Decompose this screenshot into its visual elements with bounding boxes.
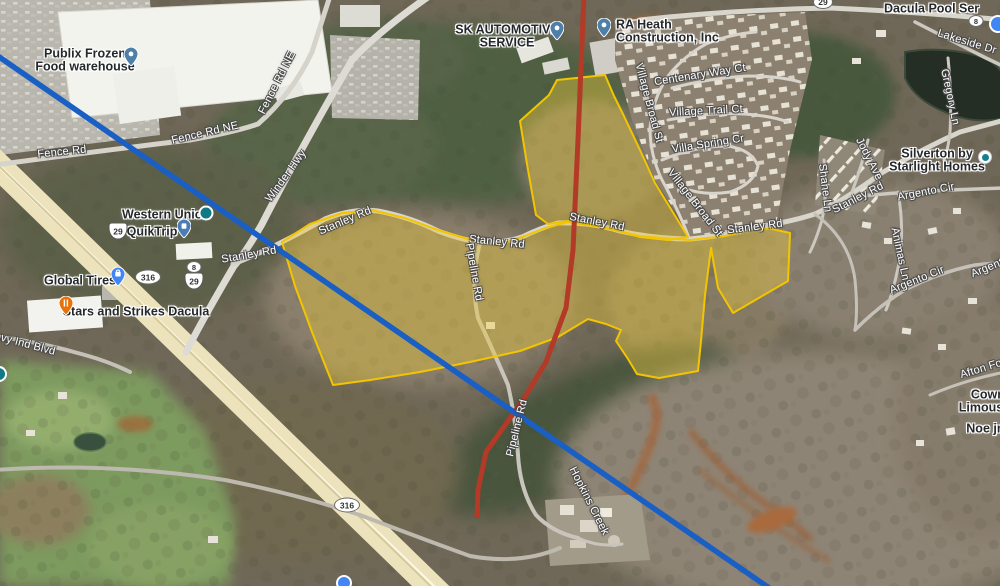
road-label-shane-ln: Shane Ln (816, 163, 834, 213)
ga-316-shield: 316 (135, 270, 161, 285)
ga-8-shield-2: 8 (969, 15, 984, 27)
road-label-fence-rd: Fence Rd (37, 143, 87, 160)
road-label-pipeline-rd-1: Pipeline Rd (463, 242, 485, 302)
ga-8-shield: 8 (187, 261, 202, 273)
road-label-stanley-rd-1: Stanley Rd (220, 244, 277, 266)
silverton-pin-icon[interactable] (978, 150, 992, 164)
western-union-dot-pin-icon[interactable] (199, 206, 214, 221)
poi-label-silverton[interactable]: Silverton byStarlight Homes (889, 147, 985, 173)
sk-automotive-pin-icon[interactable] (550, 21, 564, 45)
road-label-fence-rd-ne-2: Fence Rd NE (256, 50, 298, 116)
ra-heath-pin-icon[interactable] (597, 18, 611, 42)
road-label-gregory-ln: Gregory Ln (938, 68, 962, 126)
global-tires-shopping-pin-icon[interactable] (111, 267, 125, 291)
poi-label-publix[interactable]: Publix FrozenFood warehouse (35, 47, 134, 73)
satellite-map-canvas[interactable]: Fence Rd Fence Rd NE Fence Rd NE Winder … (0, 0, 1000, 586)
road-label-pipeline-rd-2: Pipeline Rd (504, 398, 530, 458)
stars-strikes-restaurant-pin-icon[interactable] (59, 296, 73, 320)
publix-pin-icon[interactable] (124, 47, 138, 71)
road-label-ind-blvd: ovy Ind Blvd (0, 330, 57, 358)
water-label-hopkins-creek: Hopkins Creek (567, 465, 612, 537)
road-label-stanley-rd-4: Stanley Rd (568, 211, 625, 233)
us-29-shield-top: 29 (813, 0, 833, 9)
poi-label-noe-jr[interactable]: Noe jr (966, 423, 1000, 436)
road-label-centenary-way-ct: Centenary Way Ct (653, 62, 746, 88)
poi-label-stars-strikes[interactable]: Stars and Strikes Dacula (63, 306, 210, 319)
poi-label-dacula-pool[interactable]: Dacula Pool Ser (884, 3, 979, 16)
poi-label-ra-heath[interactable]: RA HeathConstruction, Inc (616, 18, 719, 44)
road-label-argento-cut: Argento (969, 254, 1000, 280)
ga-316-shield-2: 316 (334, 498, 360, 513)
poi-label-sk-automotive[interactable]: SK AUTOMOTIVESERVICE (455, 23, 558, 49)
road-label-lakeside-dr: Lakeside Dr (936, 27, 998, 56)
us-29-shield-2: 29 (185, 273, 204, 290)
road-label-stanley-rd-5: Stanley Rd (727, 218, 784, 237)
road-label-fence-rd-ne: Fence Rd NE (170, 119, 239, 146)
road-label-argento-cir-1: Argento Cir (896, 181, 955, 204)
road-label-village-broad-st-2: Village Broad St (665, 167, 725, 239)
road-label-village-trail-ct: Village Trail Ct (669, 103, 743, 119)
road-label-animas-ln: Animas Ln (889, 226, 912, 281)
quiktrip-gas-pin-icon[interactable] (177, 219, 191, 243)
road-label-afton: Afton Fo (959, 357, 1000, 381)
poi-label-global-tires[interactable]: Global Tires (44, 275, 116, 288)
poi-label-western-union[interactable]: Western Union (122, 209, 210, 222)
label-layer: Fence Rd Fence Rd NE Fence Rd NE Winder … (0, 0, 1000, 586)
us-29-shield: 29 (109, 223, 128, 240)
road-label-villa-spring-cr: Villa Spring Cr (671, 132, 745, 155)
road-label-jody-ave: Jody Ave (853, 136, 885, 182)
road-label-stanley-rd-2: Stanley Rd (317, 205, 373, 238)
poi-label-cowry-limousine[interactable]: CowryLimousine (959, 388, 1000, 414)
road-label-stanley-rd-3: Stanley Rd (469, 233, 526, 251)
road-label-winder-hwy: Winder Hwy (263, 148, 309, 205)
poi-label-quiktrip[interactable]: QuikTrip (127, 226, 178, 239)
road-label-stanley-rd-6: Stanley Rd (830, 180, 885, 216)
